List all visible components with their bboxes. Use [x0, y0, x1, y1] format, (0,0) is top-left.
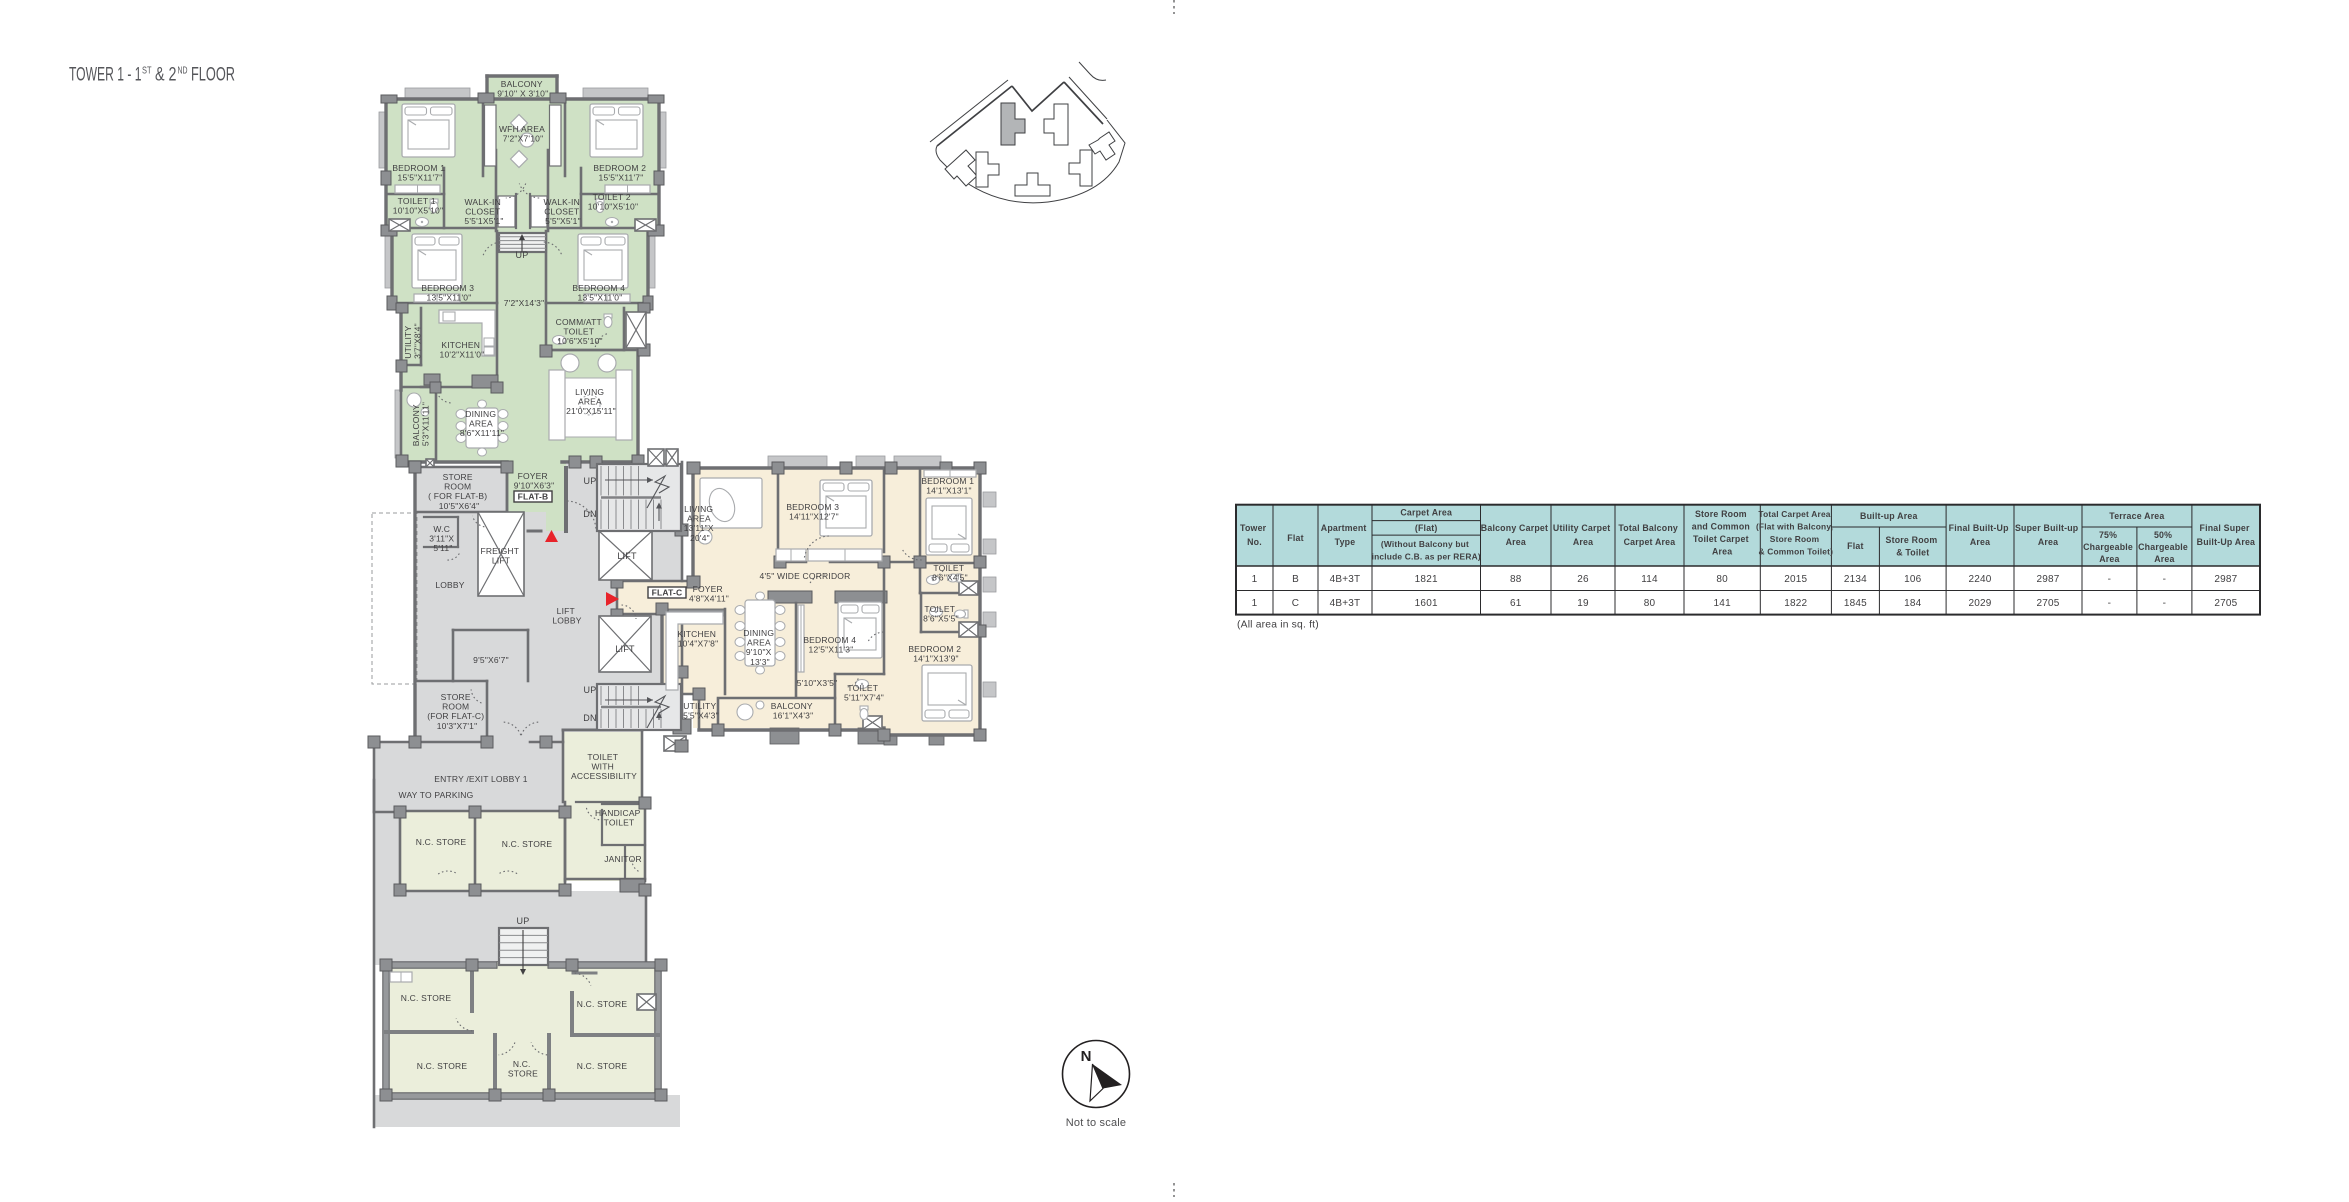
svg-text:N.C. STORE: N.C. STORE	[577, 999, 628, 1009]
svg-text:80: 80	[1716, 574, 1728, 585]
svg-text:WALK-IN CLOSET 5'5'1X5'1": WALK-IN CLOSET 5'5'1X5'1"	[464, 197, 503, 226]
svg-text:61: 61	[1510, 598, 1522, 609]
svg-text:C: C	[1292, 598, 1299, 609]
svg-text:2987: 2987	[2036, 574, 2059, 585]
svg-text:LIFT: LIFT	[615, 644, 635, 654]
svg-text:BEDROOM 4 13'5"X11'0": BEDROOM 4 13'5"X11'0"	[572, 283, 627, 303]
svg-text:(All area in sq. ft): (All area in sq. ft)	[1237, 620, 1319, 631]
svg-text:BALCONY 16'1"X4'3": BALCONY 16'1"X4'3"	[771, 701, 815, 721]
svg-text:4B+3T: 4B+3T	[1330, 598, 1361, 609]
svg-text:2134: 2134	[1844, 574, 1867, 585]
svg-text:LOBBY: LOBBY	[435, 580, 464, 590]
svg-text:Carpet Area: Carpet Area	[1400, 508, 1452, 518]
svg-text:ENTRY /EXIT LOBBY 1: ENTRY /EXIT LOBBY 1	[434, 774, 527, 784]
svg-text:BEDROOM 3 14'11"X12'7": BEDROOM 3 14'11"X12'7"	[786, 502, 841, 522]
svg-text:-: -	[2108, 574, 2112, 585]
svg-text:ST: ST	[142, 65, 152, 77]
svg-text:KITCHEN 10'4"X7'8": KITCHEN 10'4"X7'8"	[677, 629, 718, 649]
svg-text:BALCONY 5'3"X11'11": BALCONY 5'3"X11'11"	[411, 402, 431, 446]
svg-text:DN: DN	[583, 509, 596, 519]
svg-text:TOILET 8'6"X4'5": TOILET 8'6"X4'5"	[932, 563, 968, 583]
svg-text:UP: UP	[517, 916, 530, 926]
svg-text:N.C. STORE: N.C. STORE	[577, 1061, 628, 1071]
svg-text:DN: DN	[583, 713, 596, 723]
svg-text:2987: 2987	[2214, 574, 2237, 585]
svg-text:141: 141	[1714, 598, 1732, 609]
svg-text:1: 1	[1252, 598, 1258, 609]
svg-text:WFH AREA 7'2"X7'10": WFH AREA 7'2"X7'10"	[499, 124, 547, 144]
svg-text:BEDROOM 4 12'5"X11'3": BEDROOM 4 12'5"X11'3"	[803, 635, 858, 655]
svg-text:BEDROOM 1 15'5"X11'7": BEDROOM 1 15'5"X11'7"	[392, 163, 447, 183]
svg-text:JANITOR: JANITOR	[604, 854, 642, 864]
svg-text:1821: 1821	[1415, 574, 1438, 585]
svg-text:TOILET 2 10'10"X5'10": TOILET 2 10'10"X5'10"	[588, 192, 638, 212]
svg-text:1601: 1601	[1415, 598, 1438, 609]
svg-text:1: 1	[1252, 574, 1258, 585]
svg-text:BEDROOM 2 15'5"X11'7": BEDROOM 2 15'5"X11'7"	[593, 163, 648, 183]
svg-text:9'5"X6'7": 9'5"X6'7"	[473, 655, 509, 665]
svg-text:WALK-IN CLOSET 5'5"X5'1": WALK-IN CLOSET 5'5"X5'1"	[543, 197, 582, 226]
svg-text:TOILET 5'11"X7'4": TOILET 5'11"X7'4"	[844, 683, 884, 703]
svg-text:88: 88	[1510, 574, 1522, 585]
svg-text:106: 106	[1904, 574, 1922, 585]
svg-text:BALCONY 9'10'' X 3'10'': BALCONY 9'10'' X 3'10''	[497, 79, 549, 99]
svg-text:N.C. STORE: N.C. STORE	[401, 993, 452, 1003]
svg-text:184: 184	[1904, 598, 1922, 609]
svg-text:UP: UP	[516, 250, 529, 260]
svg-text:UTILITY 3'7"X8'4": UTILITY 3'7"X8'4"	[403, 323, 423, 359]
svg-text:-: -	[2163, 574, 2167, 585]
svg-text:FLOOR: FLOOR	[191, 65, 235, 86]
svg-text:BEDROOM 2 14'1"X13'9": BEDROOM 2 14'1"X13'9"	[908, 644, 963, 664]
svg-text:2240: 2240	[1968, 574, 1991, 585]
svg-text:FOYER 4'8"X4'11": FOYER 4'8"X4'11"	[689, 584, 729, 604]
svg-text:WAY TO PARKING: WAY TO PARKING	[399, 790, 474, 800]
svg-text:Flat: Flat	[1287, 533, 1303, 543]
svg-text:KITCHEN 10'2"X11'0": KITCHEN 10'2"X11'0"	[440, 340, 485, 360]
svg-text:7'2"X14'3": 7'2"X14'3"	[504, 298, 545, 308]
svg-text:& 2: & 2	[155, 65, 177, 86]
svg-text:26: 26	[1577, 574, 1589, 585]
svg-text:FLAT-B: FLAT-B	[518, 492, 549, 502]
svg-text:1845: 1845	[1844, 598, 1867, 609]
svg-text:LIFT: LIFT	[617, 551, 637, 561]
svg-text:-: -	[2108, 598, 2112, 609]
svg-text:Not to scale: Not to scale	[1066, 1117, 1126, 1129]
svg-text:BEDROOM 1 14'1"X13'1": BEDROOM 1 14'1"X13'1"	[921, 476, 976, 496]
svg-text:2029: 2029	[1968, 598, 1991, 609]
svg-text:UTILITY 5'5"X4'3": UTILITY 5'5"X4'3"	[683, 701, 719, 721]
svg-text:Flat: Flat	[1847, 541, 1863, 551]
svg-text:N.C. STORE: N.C. STORE	[502, 839, 553, 849]
svg-text:2015: 2015	[1784, 574, 1807, 585]
svg-text:4'5" WIDE CORRIDOR: 4'5" WIDE CORRIDOR	[760, 571, 851, 581]
svg-text:N.C. STORE: N.C. STORE	[416, 837, 467, 847]
svg-text:ND: ND	[178, 65, 188, 77]
svg-text:19: 19	[1577, 598, 1589, 609]
svg-text:Terrace Area: Terrace Area	[2109, 511, 2164, 521]
svg-text:4B+3T: 4B+3T	[1330, 574, 1361, 585]
svg-text:FLAT-C: FLAT-C	[652, 588, 683, 598]
svg-text:UP: UP	[584, 685, 597, 695]
svg-text:B: B	[1292, 574, 1299, 585]
svg-text:TOWER 1 - 1: TOWER 1 - 1	[69, 65, 142, 86]
svg-text:80: 80	[1644, 598, 1656, 609]
svg-text:-: -	[2163, 598, 2167, 609]
svg-text:UP: UP	[584, 476, 597, 486]
svg-text:1822: 1822	[1784, 598, 1807, 609]
svg-text:2705: 2705	[2214, 598, 2237, 609]
svg-text:BEDROOM 3 13'5"X11'0": BEDROOM 3 13'5"X11'0"	[421, 283, 476, 303]
svg-text:(Flat): (Flat)	[1415, 523, 1438, 533]
svg-text:FOYER 9'10"X6'3": FOYER 9'10"X6'3"	[514, 471, 555, 491]
svg-text:N.C. STORE: N.C. STORE	[417, 1061, 468, 1071]
svg-text:5'10"X3'5": 5'10"X3'5"	[797, 678, 838, 688]
svg-text:114: 114	[1641, 574, 1658, 585]
svg-text:N: N	[1081, 1048, 1092, 1065]
svg-text:2705: 2705	[2036, 598, 2059, 609]
svg-text:TOILET 8'6"X5'5": TOILET 8'6"X5'5"	[923, 604, 959, 624]
svg-text:Built-up Area: Built-up Area	[1860, 511, 1918, 521]
svg-text:TOILET 1 10'10"X5'10": TOILET 1 10'10"X5'10"	[393, 196, 443, 216]
